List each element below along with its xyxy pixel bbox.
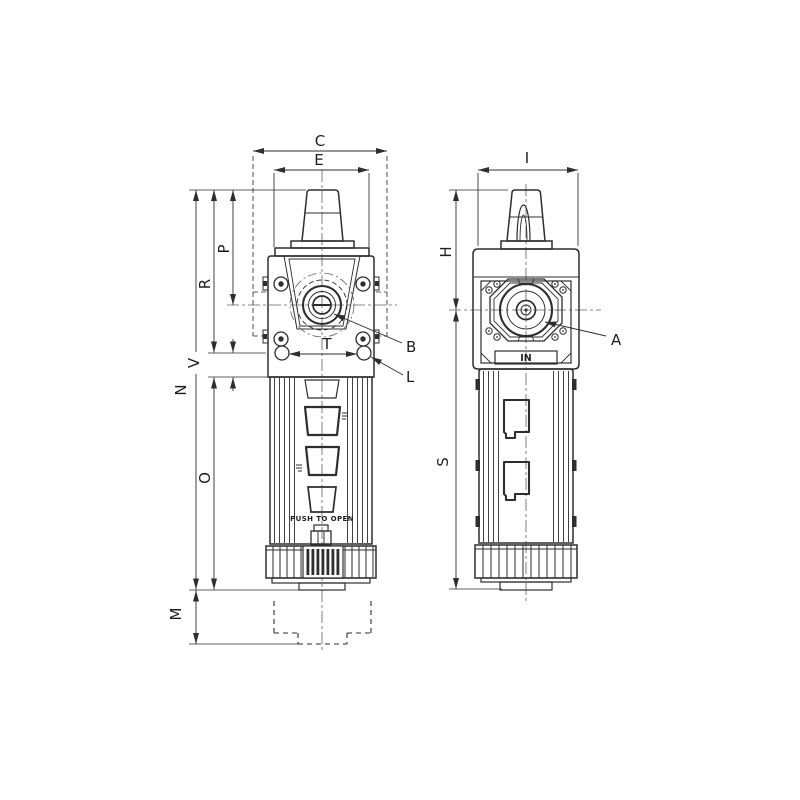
side-centerlines: [449, 184, 601, 602]
inlet-label-box: IN: [495, 351, 557, 364]
dim-label-c: C: [315, 132, 325, 150]
adjust-knob-side: [501, 190, 552, 249]
dim-label-r: R: [196, 279, 214, 289]
drain-button: [311, 525, 331, 545]
inlet-label: IN: [520, 353, 532, 364]
dim-label-v: V: [185, 357, 203, 368]
push-to-open-text: PUSH TO OPEN: [290, 515, 354, 523]
side-callouts: A: [545, 322, 622, 349]
technical-drawing: C E P R V N O M T: [0, 0, 800, 800]
front-dimension-lines: [196, 151, 387, 644]
callout-label-l: L: [406, 368, 415, 386]
dim-label-m: M: [167, 608, 185, 621]
dim-label-e: E: [314, 151, 323, 169]
dim-label-i: I: [525, 149, 529, 167]
bowl-body-front: PUSH TO OPEN: [270, 377, 372, 545]
knurl-lines-side: [483, 545, 571, 578]
callout-label-a: A: [611, 331, 622, 349]
dim-label-h: H: [437, 246, 455, 257]
drain-knob-striped: [303, 546, 343, 578]
regulator-head-front: [263, 248, 379, 377]
sight-windows: [305, 380, 340, 512]
knurled-ring-front: [266, 546, 376, 590]
removal-clearance-envelope: [274, 601, 371, 644]
regulator-head-side: IN: [473, 249, 579, 369]
callout-label-b: B: [406, 338, 416, 356]
dim-label-t: T: [321, 335, 332, 353]
dim-label-o: O: [196, 472, 214, 484]
dim-label-n: N: [172, 384, 190, 395]
side-view: I H S: [434, 149, 622, 602]
dim-label-s: S: [434, 457, 452, 467]
dim-label-p: P: [215, 244, 233, 253]
mounting-clearance-dashed-box: [253, 156, 387, 336]
side-cutouts: [504, 400, 529, 500]
drawing-canvas: C E P R V N O M T: [0, 0, 800, 800]
adjust-knob-front: [291, 190, 354, 248]
front-view: C E P R V N O M T: [167, 132, 416, 650]
level-mark-min: [296, 465, 302, 471]
